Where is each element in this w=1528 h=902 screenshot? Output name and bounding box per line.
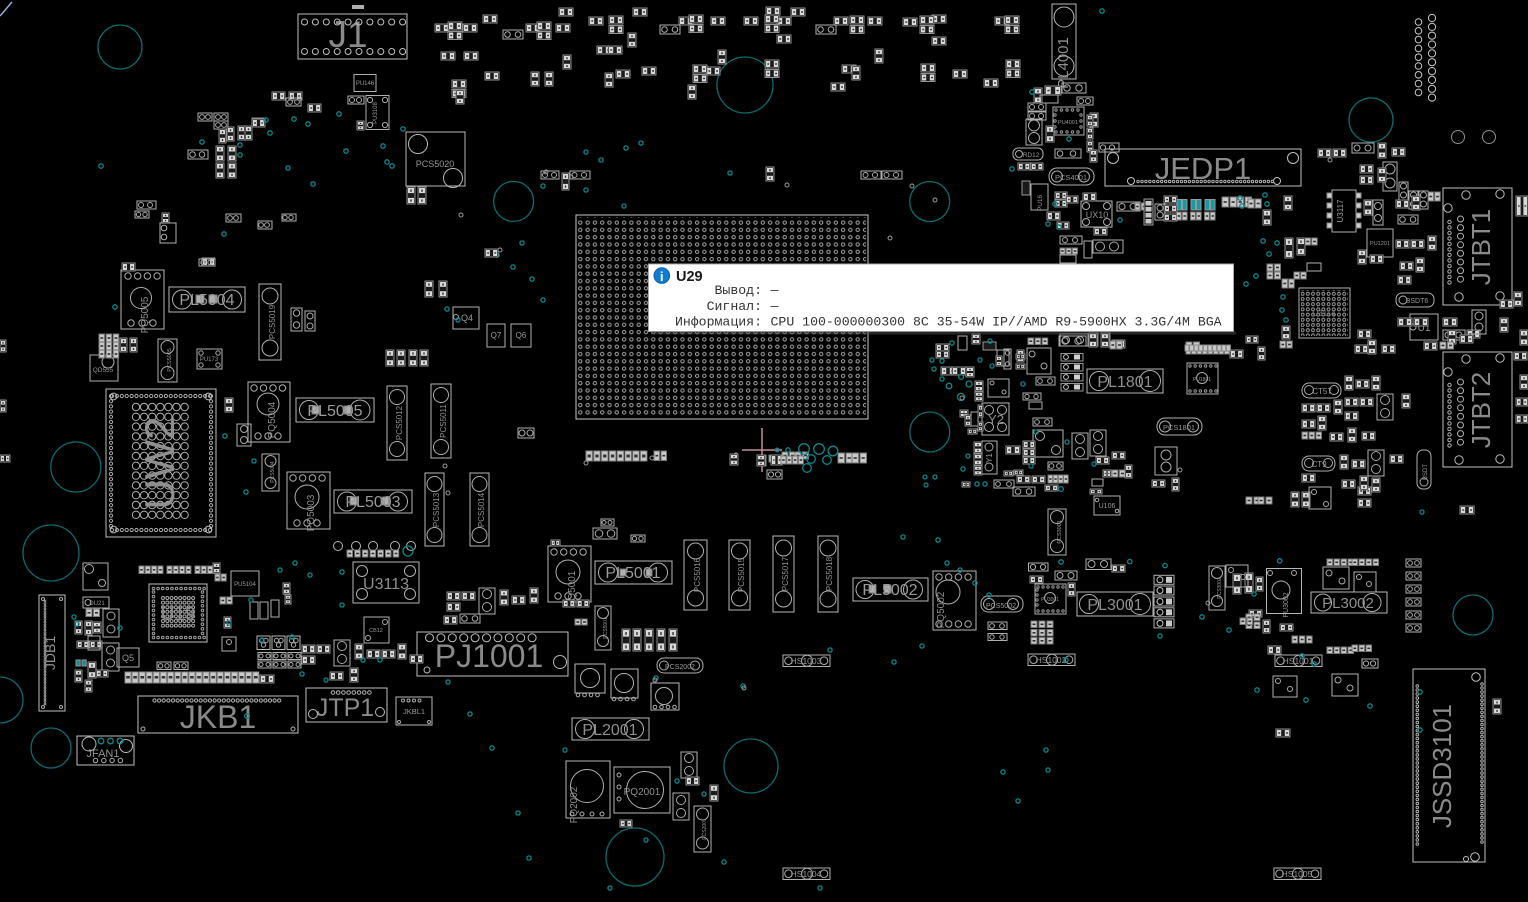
svg-text:PU4001: PU4001 (1058, 120, 1078, 126)
svg-text:PCS5013: PCS5013 (432, 492, 441, 527)
svg-text:Y1: Y1 (985, 453, 994, 463)
svg-text:Q6: Q6 (516, 331, 527, 340)
svg-text:PL2001: PL2001 (582, 722, 637, 739)
svg-text:BSDT: BSDT (1423, 464, 1429, 480)
svg-text:PCS3002: PCS3002 (1217, 577, 1223, 599)
svg-text:PQ5005: PQ5005 (140, 296, 151, 333)
svg-text:PCS1801: PCS1801 (1163, 423, 1195, 432)
svg-text:Вывод:: Вывод: (715, 283, 762, 298)
svg-text:JTBT1: JTBT1 (1466, 209, 1496, 286)
svg-text:CT9: CT9 (1311, 460, 1327, 469)
svg-text:RD12: RD12 (1023, 152, 1040, 159)
svg-text:U3114: U3114 (1313, 309, 1337, 318)
svg-text:PU16: PU16 (1037, 194, 1044, 211)
svg-text:QD555: QD555 (93, 367, 114, 374)
svg-text:Информация:: Информация: (675, 315, 762, 330)
svg-text:U3117: U3117 (1336, 199, 1345, 223)
svg-text:PCS5019: PCS5019 (268, 304, 277, 339)
svg-text:PCS3001: PCS3001 (1057, 520, 1063, 544)
svg-text:U29: U29 (676, 269, 703, 285)
svg-text:JTP1: JTP1 (316, 694, 374, 722)
svg-text:PCS5020: PCS5020 (416, 159, 455, 169)
svg-text:HS1001: HS1001 (1283, 656, 1314, 666)
svg-text:PL5002: PL5002 (862, 582, 917, 599)
svg-text:PCS5012: PCS5012 (395, 405, 404, 440)
svg-text:UW2: UW2 (136, 416, 183, 509)
svg-text:HS1005: HS1005 (1282, 869, 1313, 879)
svg-text:PCS5015: PCS5015 (737, 557, 746, 592)
svg-text:HS1002: HS1002 (1036, 655, 1067, 665)
svg-text:PL1801: PL1801 (1097, 374, 1152, 391)
svg-text:PU1201: PU1201 (1370, 241, 1390, 247)
svg-text:—: — (770, 299, 779, 314)
svg-text:Q5: Q5 (122, 653, 134, 663)
svg-text:PL5001: PL5001 (605, 565, 660, 582)
svg-text:PU3002: PU3002 (1283, 592, 1290, 617)
svg-text:PCS5016: PCS5016 (693, 557, 702, 592)
svg-text:PU3001: PU3001 (1041, 597, 1059, 603)
svg-text:HS1003: HS1003 (791, 656, 822, 666)
svg-text:BSDT6: BSDT6 (1406, 298, 1429, 305)
svg-text:JTBT2: JTBT2 (1466, 372, 1496, 449)
svg-text:PL5005: PL5005 (307, 403, 362, 420)
svg-text:PQ2002: PQ2002 (569, 786, 580, 823)
svg-text:PL5004: PL5004 (179, 292, 234, 309)
svg-text:PCS5017: PCS5017 (781, 556, 790, 591)
svg-text:PU1801: PU1801 (1193, 377, 1211, 383)
svg-text:Y2: Y2 (988, 412, 1004, 427)
svg-text:PL4001: PL4001 (1055, 37, 1072, 89)
svg-text:JSSD3101: JSSD3101 (1427, 704, 1457, 828)
svg-text:PU3108: PU3108 (373, 101, 379, 123)
svg-text:PU5104: PU5104 (234, 582, 256, 588)
svg-text:CT57: CT57 (1312, 387, 1332, 396)
svg-text:CPU 100-000000300 8C 35-54W IP: CPU 100-000000300 8C 35-54W IP//AMD R9-5… (771, 315, 1222, 330)
svg-text:PQ2001: PQ2001 (624, 787, 661, 798)
svg-text:Сигнал:: Сигнал: (707, 299, 762, 314)
svg-text:—: — (770, 283, 779, 298)
svg-text:PCS2001: PCS2001 (702, 818, 708, 840)
svg-text:PCS5011: PCS5011 (439, 404, 448, 438)
svg-text:JKBL1: JKBL1 (403, 707, 425, 716)
svg-text:U106: U106 (1099, 503, 1116, 510)
svg-text:i: i (660, 270, 663, 284)
svg-text:Q4: Q4 (461, 313, 473, 323)
svg-text:HS1004: HS1004 (791, 869, 822, 879)
svg-text:Q7: Q7 (491, 331, 502, 340)
svg-text:PJ1001: PJ1001 (435, 638, 544, 674)
svg-text:U3113: U3113 (363, 576, 409, 593)
svg-text:PL5003: PL5003 (345, 494, 400, 511)
svg-text:U19: U19 (161, 604, 196, 625)
svg-text:PCS5002: PCS5002 (986, 603, 1016, 610)
svg-text:PCS2002: PCS2002 (665, 664, 695, 671)
svg-text:PCS4001: PCS4001 (1055, 173, 1087, 182)
svg-text:PCS5005: PCS5005 (167, 348, 173, 372)
svg-text:PCS5001: PCS5001 (603, 617, 609, 639)
svg-text:PL3001: PL3001 (1087, 597, 1142, 614)
svg-text:PCS5004: PCS5004 (270, 461, 276, 483)
svg-text:PCS5014: PCS5014 (477, 492, 486, 527)
svg-text:PCS5018: PCS5018 (825, 556, 834, 591)
svg-text:PU173: PU173 (200, 357, 219, 363)
svg-text:DU21: DU21 (89, 601, 105, 607)
svg-text:PL3002: PL3002 (1322, 595, 1374, 612)
svg-text:UX10: UX10 (1086, 210, 1109, 220)
svg-text:CB12: CB12 (369, 628, 383, 634)
svg-text:PU146: PU146 (356, 81, 375, 87)
